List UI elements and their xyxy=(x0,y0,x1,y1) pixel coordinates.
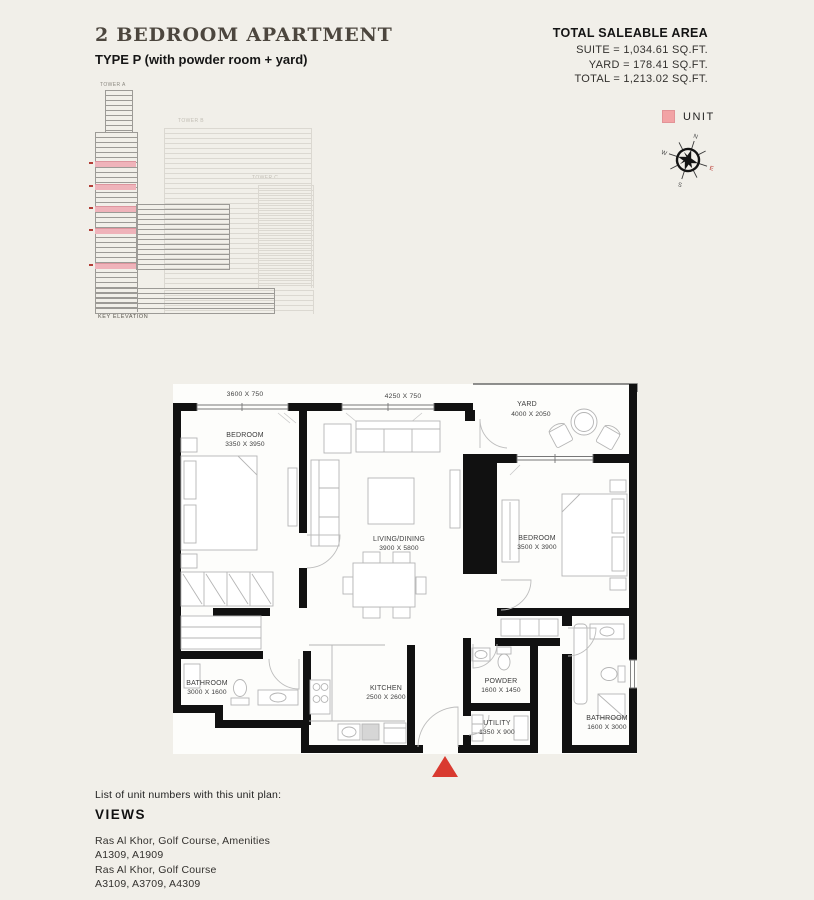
utility-label: UTILITY xyxy=(483,720,511,727)
tower-a-main-elevation xyxy=(95,132,138,312)
living-dining-size: 3900 X 5800 xyxy=(379,545,419,552)
floor-tick xyxy=(89,207,93,209)
floor-tick xyxy=(89,162,93,164)
tower-a-wing-elevation xyxy=(136,204,230,270)
compass-north-label: N xyxy=(692,134,698,141)
bedroom2-size: 3500 X 3900 xyxy=(517,544,557,551)
unit-numbers-intro: List of unit numbers with this unit plan… xyxy=(95,789,281,801)
floor-plan-brochure-page: { "header": { "title": "2 BEDROOM APARTM… xyxy=(0,0,814,900)
bathroom1-size: 3000 X 1600 xyxy=(187,689,227,696)
page-title: 2 BEDROOM APARTMENT xyxy=(95,24,393,46)
powder-label: POWDER xyxy=(485,678,518,685)
entrance-marker xyxy=(432,756,458,777)
dimension-middle: 4250 X 750 xyxy=(385,393,422,400)
yard-area: YARD = 178.41 SQ.FT. xyxy=(553,58,708,73)
floor-tick xyxy=(89,229,93,231)
bedroom1-size: 3350 X 3950 xyxy=(225,441,265,448)
floor-tick xyxy=(89,264,93,266)
unit-floor-highlight xyxy=(95,206,136,212)
unit-floor-highlight xyxy=(95,263,136,269)
views-heading: VIEWS xyxy=(95,807,146,822)
compass-east-label: E xyxy=(708,166,714,173)
view-unit-numbers: A3109, A3709, A4309 xyxy=(95,878,200,890)
view-unit-numbers: A1309, A1909 xyxy=(95,849,163,861)
tower-a-label: TOWER A xyxy=(100,82,126,88)
yard-label: YARD xyxy=(517,401,537,408)
yard-size: 4000 X 2050 xyxy=(511,411,551,418)
compass-west-label: W xyxy=(660,150,668,158)
unit-type-subtitle: TYPE P (with powder room + yard) xyxy=(95,52,308,67)
compass-south-label: S xyxy=(677,182,683,189)
compass-rose-icon: N E S W xyxy=(656,128,720,192)
utility-size: 1350 X 900 xyxy=(479,729,515,736)
key-elevation-caption: KEY ELEVATION xyxy=(98,314,148,320)
floor-tick xyxy=(89,185,93,187)
unit-legend-label: UNIT xyxy=(683,111,715,123)
view-description: Ras Al Khor, Golf Course, Amenities xyxy=(95,835,270,847)
total-saleable-area-block: TOTAL SALEABLE AREA SUITE = 1,034.61 SQ.… xyxy=(553,26,708,87)
podium-elevation xyxy=(95,288,275,314)
tower-a-top-elevation xyxy=(105,90,133,132)
bathroom2-label: BATHROOM xyxy=(586,715,628,722)
unit-color-swatch xyxy=(662,110,675,123)
area-heading: TOTAL SALEABLE AREA xyxy=(553,26,708,40)
unit-floor-highlight xyxy=(95,161,136,167)
unit-floor-highlight xyxy=(95,184,136,190)
tower-b-label: TOWER B xyxy=(178,118,204,124)
tower-c-elevation xyxy=(258,185,314,288)
unit-floor-highlight xyxy=(95,228,136,234)
key-elevation-diagram: TOWER A TOWER B TOWER C KEY ELEVATION xyxy=(88,82,323,327)
kitchen-size: 2500 X 2600 xyxy=(366,694,406,701)
bedroom2-label: BEDROOM xyxy=(518,535,556,542)
kitchen-label: KITCHEN xyxy=(370,685,402,692)
view-description: Ras Al Khor, Golf Course xyxy=(95,864,217,876)
total-area: TOTAL = 1,213.02 SQ.FT. xyxy=(553,72,708,87)
floor-plan: 3600 X 750 4250 X 750 BEDROOM 3350 X 395… xyxy=(160,378,650,788)
bathroom2-size: 1600 X 3000 xyxy=(587,724,627,731)
unit-legend: UNIT xyxy=(662,110,715,123)
bedroom1-label: BEDROOM xyxy=(226,432,264,439)
dimension-left: 3600 X 750 xyxy=(227,391,264,398)
living-dining-label: LIVING/DINING xyxy=(373,536,425,543)
suite-area: SUITE = 1,034.61 SQ.FT. xyxy=(553,43,708,58)
powder-size: 1600 X 1450 xyxy=(481,687,521,694)
bathroom1-label: BATHROOM xyxy=(186,680,228,687)
